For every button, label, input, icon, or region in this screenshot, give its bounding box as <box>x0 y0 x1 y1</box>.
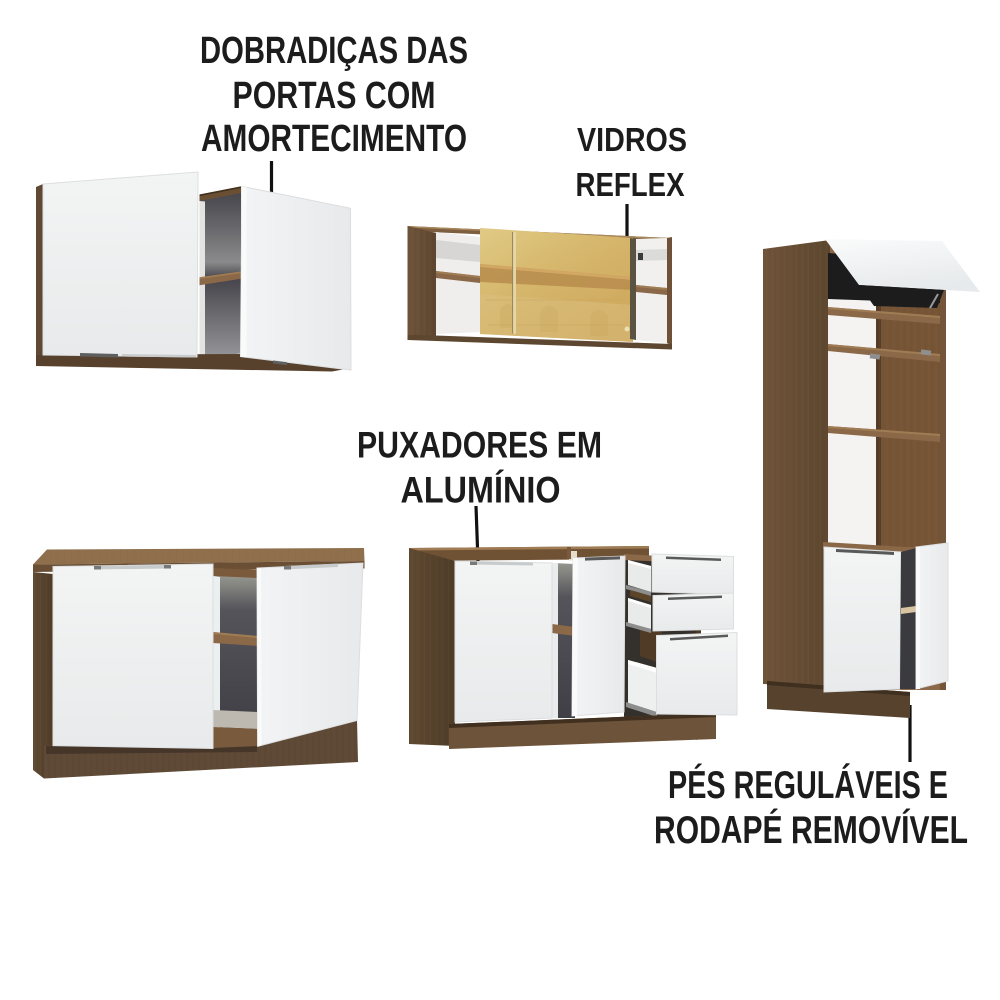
svg-text:PORTAS COM: PORTAS COM <box>233 75 436 117</box>
svg-text:PÉS REGULÁVEIS E: PÉS REGULÁVEIS E <box>668 763 948 807</box>
svg-text:AMORTECIMENTO: AMORTECIMENTO <box>201 118 467 160</box>
svg-text:PUXADORES EM: PUXADORES EM <box>357 425 602 466</box>
svg-text:ALUMÍNIO: ALUMÍNIO <box>401 470 561 511</box>
svg-text:DOBRADIÇAS DAS: DOBRADIÇAS DAS <box>200 30 468 72</box>
svg-text:REFLEX: REFLEX <box>576 166 685 203</box>
svg-text:VIDROS: VIDROS <box>577 121 687 158</box>
svg-text:RODAPÉ REMOVÍVEL: RODAPÉ REMOVÍVEL <box>654 808 968 852</box>
